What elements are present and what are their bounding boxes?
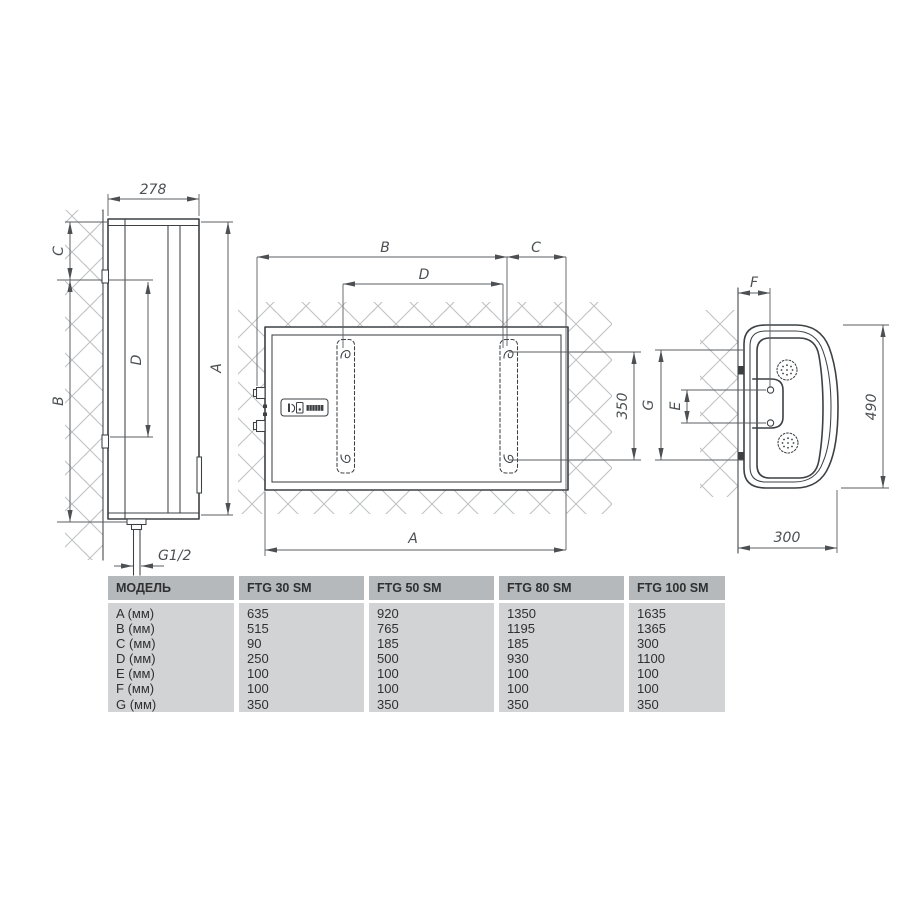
value-cell: 300 <box>637 636 725 651</box>
value-cell: 100 <box>247 681 364 696</box>
value-cell: 765 <box>377 621 494 636</box>
table-body-cell: 1350 1195 185 930 100 100 350 <box>499 603 624 712</box>
wall-hatch <box>65 210 103 560</box>
dim-label-a: A <box>209 363 225 374</box>
cable-cover <box>197 457 202 493</box>
dim-label-300: 300 <box>774 530 801 546</box>
value-cell: 930 <box>507 651 624 666</box>
value-cell: 250 <box>247 651 364 666</box>
table-body-cell: 1635 1365 300 1100 100 100 350 <box>629 603 725 712</box>
dim-label-c: C <box>51 246 67 256</box>
table-header-cell: FTG 30 SM <box>239 576 364 600</box>
technical-drawing: 278 A C B D G1/2 <box>0 0 900 576</box>
param-label: G (мм) <box>116 697 234 712</box>
table-header-cell: FTG 80 SM <box>499 576 624 600</box>
param-label: A (мм) <box>116 606 234 621</box>
value-cell: 185 <box>507 636 624 651</box>
value-cell: 100 <box>377 666 494 681</box>
param-label: C (мм) <box>116 636 234 651</box>
table-body-cell: 635 515 90 250 100 100 350 <box>239 603 364 712</box>
table-body-cell: A (мм) B (мм) C (мм) D (мм) E (мм) F (мм… <box>108 603 234 712</box>
power-icon <box>288 404 290 413</box>
table-column-ftg80: FTG 80 SM 1350 1195 185 930 100 100 350 <box>499 576 624 712</box>
table-column-model: МОДЕЛЬ A (мм) B (мм) C (мм) D (мм) E (мм… <box>108 576 234 712</box>
wall-hatch <box>700 310 738 497</box>
value-cell: 500 <box>377 651 494 666</box>
wall-bracket-top <box>738 366 745 375</box>
value-cell: 920 <box>377 606 494 621</box>
table-column-ftg100: FTG 100 SM 1635 1365 300 1100 100 100 35… <box>629 576 725 712</box>
dim-label-278: 278 <box>140 182 167 198</box>
heater-profile-body <box>738 325 839 488</box>
dim-label-d: D <box>129 354 145 365</box>
dim-label-d: D <box>419 267 430 283</box>
dim-label-350: 350 <box>615 393 631 420</box>
dim-label-c: C <box>531 240 541 256</box>
value-cell: 515 <box>247 621 364 636</box>
value-cell: 100 <box>637 681 725 696</box>
param-label: E (мм) <box>116 666 234 681</box>
dim-label-g12: G1/2 <box>158 548 191 564</box>
value-cell: 350 <box>377 697 494 712</box>
wall-bracket-top <box>102 270 109 283</box>
table-column-ftg30: FTG 30 SM 635 515 90 250 100 100 350 <box>239 576 364 712</box>
dim-label-g: G <box>641 399 657 410</box>
dim-label-e: E <box>668 401 684 410</box>
value-cell: 350 <box>637 697 725 712</box>
profile-view: F E G 490 300 <box>641 275 889 553</box>
water-heater-dimension-sheet: 278 A C B D G1/2 <box>0 0 900 900</box>
heater-front-body <box>254 327 569 490</box>
dim-label-a: A <box>407 531 418 547</box>
value-cell: 1195 <box>507 621 624 636</box>
table-header-cell: FTG 50 SM <box>369 576 494 600</box>
value-cell: 100 <box>247 666 364 681</box>
value-cell: 1100 <box>637 651 725 666</box>
mount-hole-top <box>767 387 773 393</box>
value-cell: 90 <box>247 636 364 651</box>
front-view: B C D A 350 <box>238 240 641 556</box>
value-cell: 100 <box>507 681 624 696</box>
pipe-stub-top <box>257 388 266 399</box>
pipe-fitting <box>127 519 146 525</box>
dim-label-b: B <box>380 240 390 256</box>
value-cell: 100 <box>507 666 624 681</box>
dimensions-table: МОДЕЛЬ A (мм) B (мм) C (мм) D (мм) E (мм… <box>108 576 725 712</box>
value-cell: 185 <box>377 636 494 651</box>
value-cell: 635 <box>247 606 364 621</box>
value-cell: 350 <box>247 697 364 712</box>
mount-hole-bottom <box>767 420 773 426</box>
value-cell: 350 <box>507 697 624 712</box>
value-cell: 1350 <box>507 606 624 621</box>
wall-bracket-bottom <box>738 452 745 461</box>
table-header-cell: FTG 100 SM <box>629 576 725 600</box>
value-cell: 100 <box>637 666 725 681</box>
value-cell: 1365 <box>637 621 725 636</box>
param-label: D (мм) <box>116 651 234 666</box>
table-body-cell: 920 765 185 500 100 100 350 <box>369 603 494 712</box>
dim-label-b: B <box>51 396 67 406</box>
side-view: 278 A C B D G1/2 <box>51 182 233 575</box>
pipe-stub-bottom <box>257 421 266 432</box>
dim-label-490: 490 <box>864 394 880 421</box>
wall-bracket-bottom <box>102 435 109 448</box>
value-cell: 1635 <box>637 606 725 621</box>
param-label: F (мм) <box>116 681 234 696</box>
param-label: B (мм) <box>116 621 234 636</box>
value-cell: 100 <box>377 681 494 696</box>
table-column-ftg50: FTG 50 SM 920 765 185 500 100 100 350 <box>369 576 494 712</box>
table-header-cell: МОДЕЛЬ <box>108 576 234 600</box>
dim-label-f: F <box>750 275 759 291</box>
